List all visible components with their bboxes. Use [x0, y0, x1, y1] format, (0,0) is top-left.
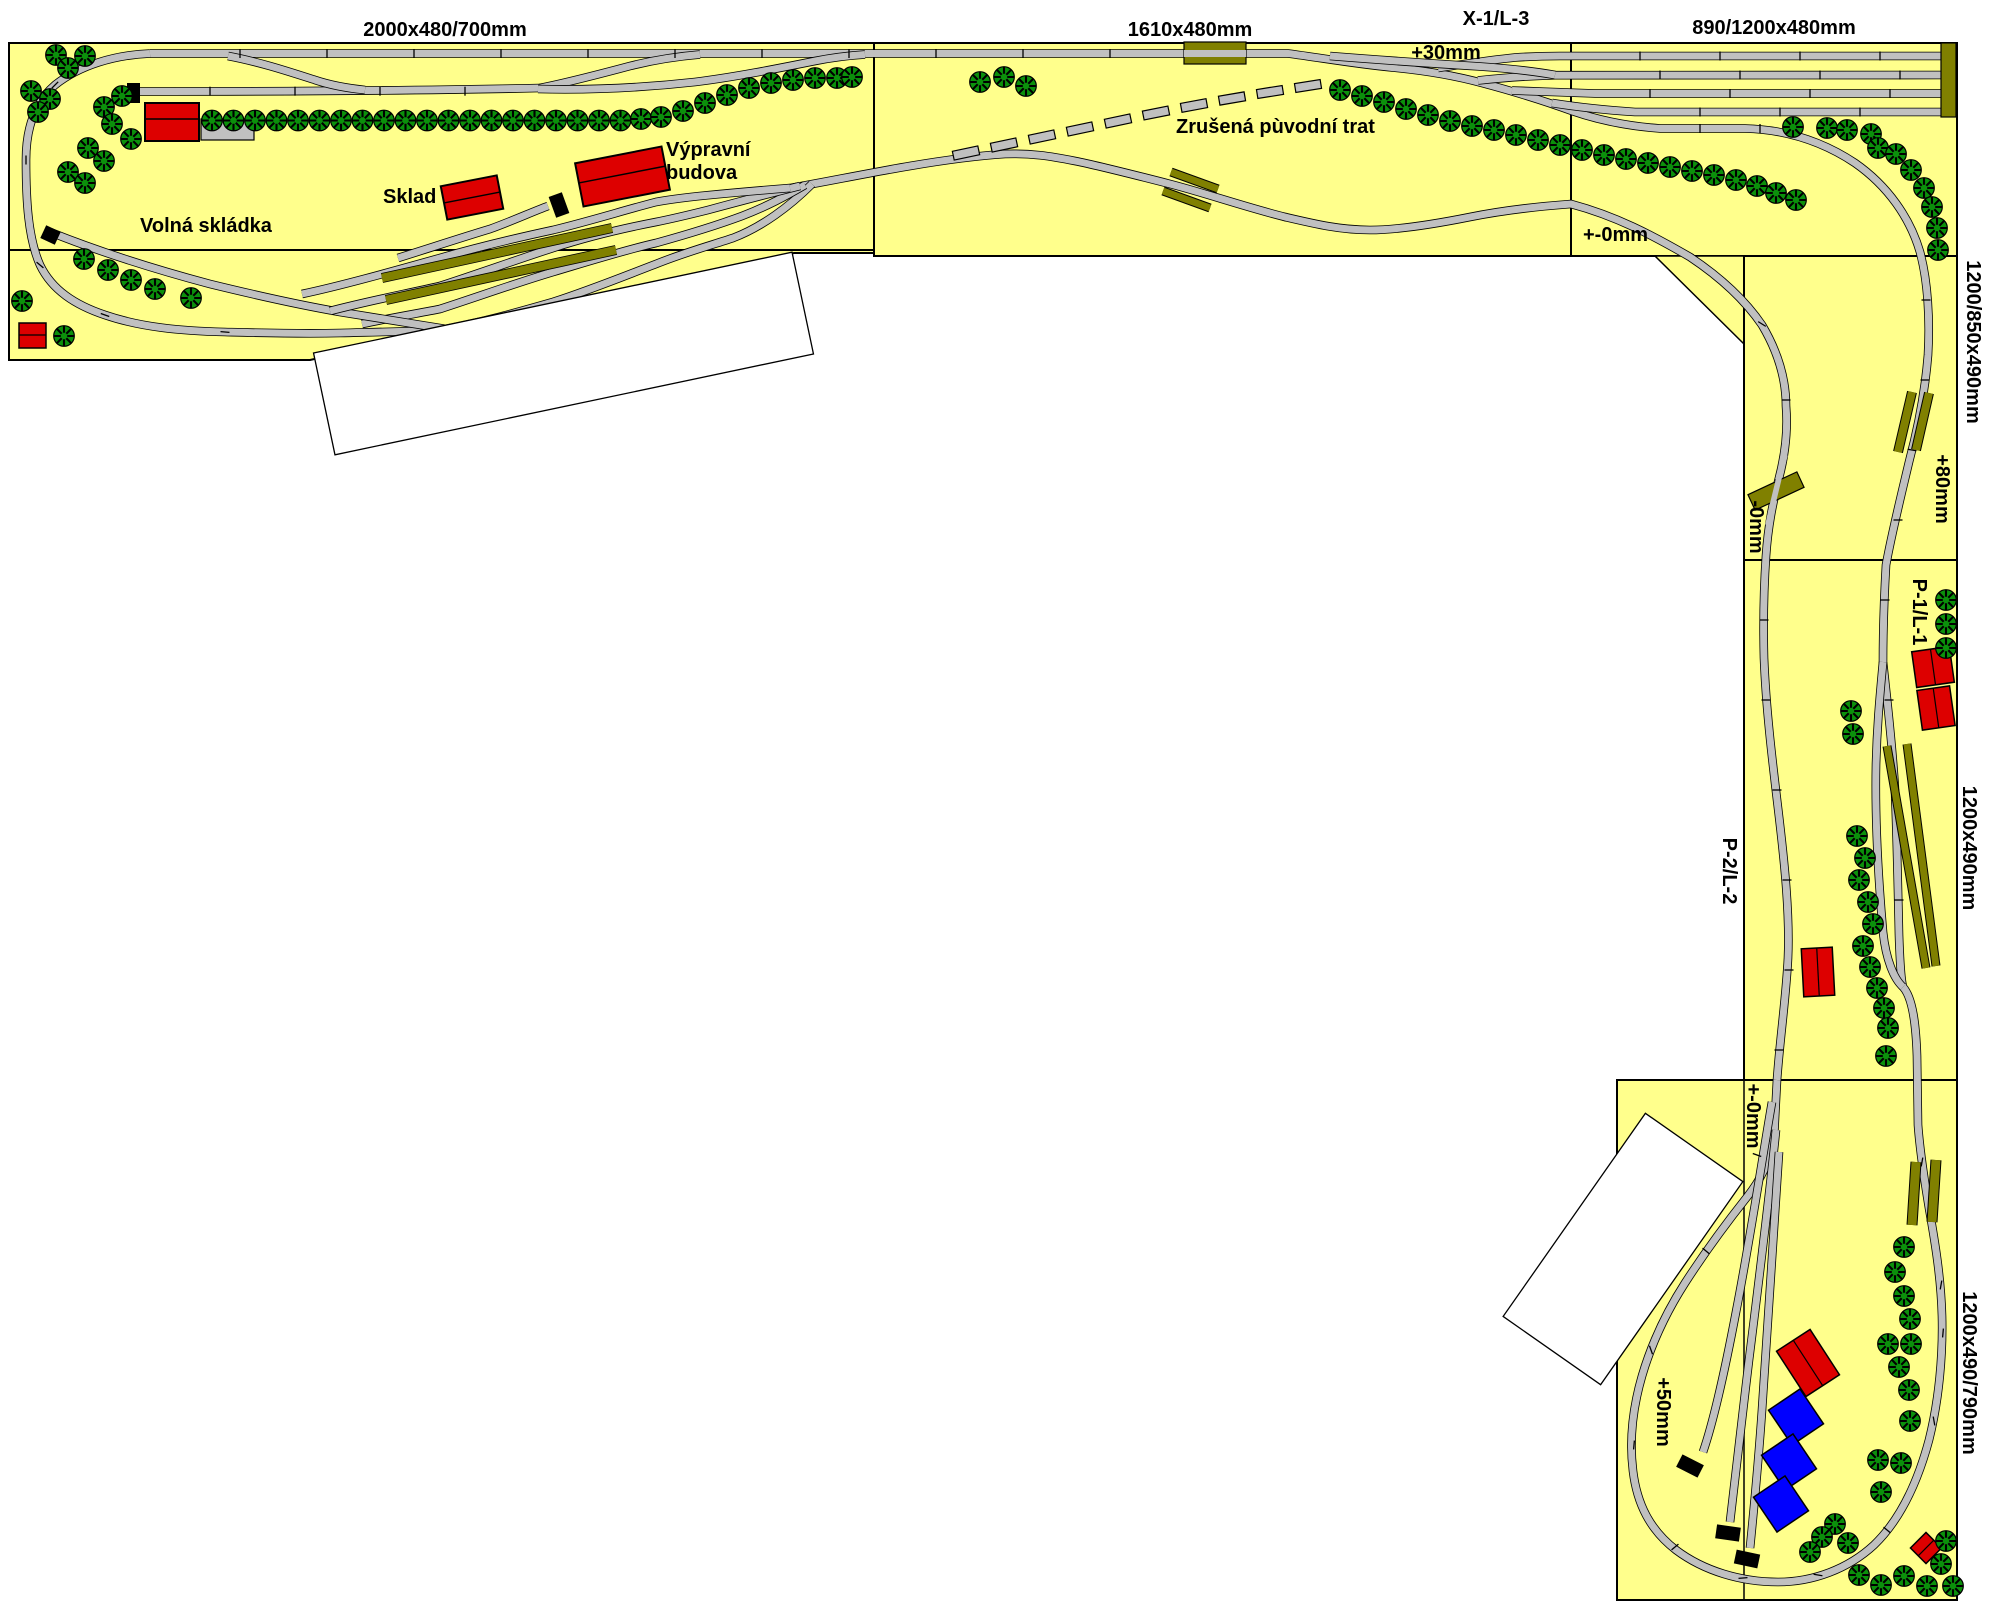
svg-text:Zrušená pùvodní trat: Zrušená pùvodní trat	[1176, 116, 1375, 138]
svg-text:Volná skládka: Volná skládka	[140, 215, 273, 237]
svg-text:P-2/L-2: P-2/L-2	[1718, 838, 1740, 905]
svg-text:budova: budova	[666, 162, 738, 184]
svg-text:1610x480mm: 1610x480mm	[1128, 19, 1253, 41]
svg-text:890/1200x480mm: 890/1200x480mm	[1692, 17, 1855, 39]
svg-text:Sklad: Sklad	[383, 186, 436, 208]
svg-text:+80mm: +80mm	[1931, 454, 1953, 524]
svg-text:+-0mm: +-0mm	[1583, 224, 1648, 246]
svg-text:1200x490mm: 1200x490mm	[1958, 786, 1980, 911]
svg-text:X-1/L-3: X-1/L-3	[1463, 8, 1530, 30]
svg-text:1200/850x490mm: 1200/850x490mm	[1962, 260, 1984, 423]
svg-text:Výpravní: Výpravní	[666, 139, 752, 161]
svg-text:P-1/L-1: P-1/L-1	[1908, 579, 1930, 646]
svg-text:+30mm: +30mm	[1411, 42, 1481, 64]
svg-text:+-0mm: +-0mm	[1742, 1083, 1764, 1148]
svg-text:1200x490/790mm: 1200x490/790mm	[1958, 1291, 1980, 1454]
svg-text:-0mm: -0mm	[1745, 500, 1767, 553]
svg-text:+50mm: +50mm	[1652, 1377, 1674, 1447]
svg-text:2000x480/700mm: 2000x480/700mm	[363, 19, 526, 41]
